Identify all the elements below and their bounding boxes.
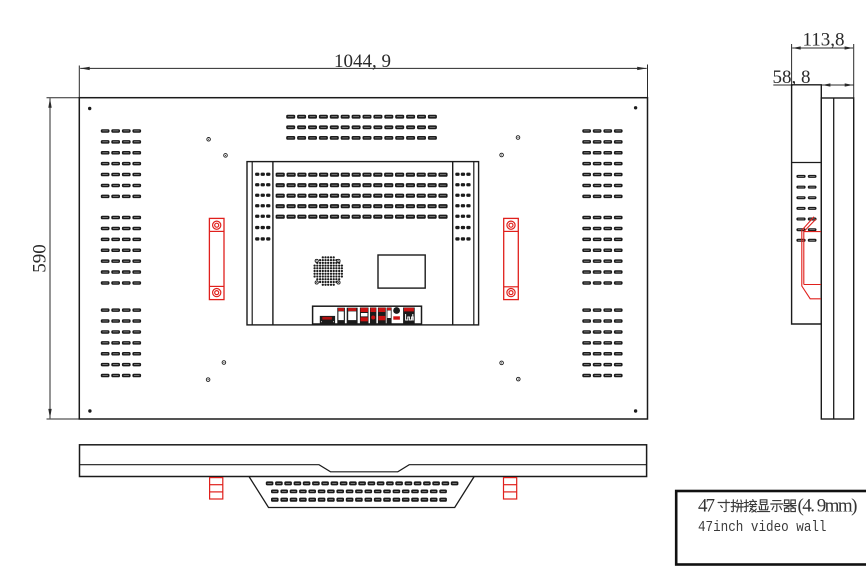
svg-text:47: 47 bbox=[698, 496, 715, 517]
svg-text:590: 590 bbox=[30, 244, 51, 273]
svg-text:47inch video wall: 47inch video wall bbox=[698, 520, 827, 536]
svg-text:(4. 9mm): (4. 9mm) bbox=[798, 496, 858, 517]
svg-text:113,8: 113,8 bbox=[802, 30, 844, 51]
svg-text:1044, 9: 1044, 9 bbox=[334, 51, 391, 72]
